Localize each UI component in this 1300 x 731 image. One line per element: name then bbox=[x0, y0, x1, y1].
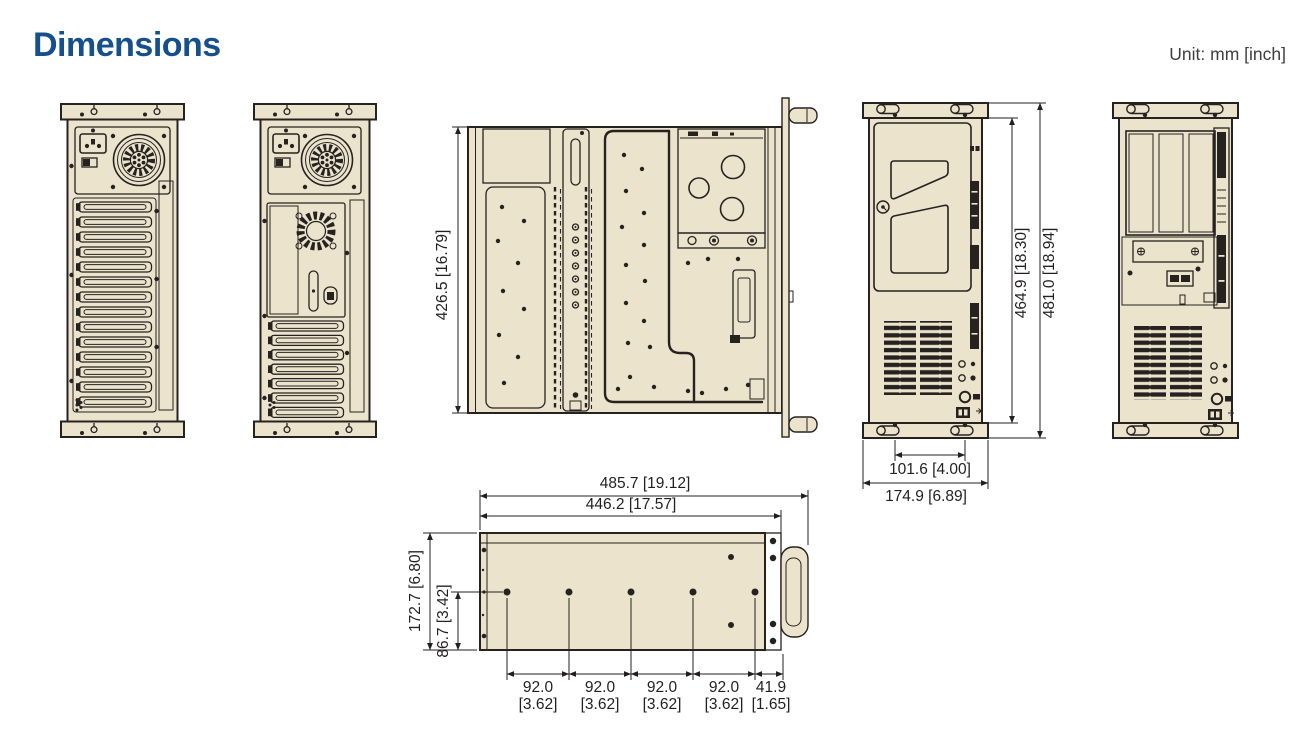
chassis-bottom-outline bbox=[480, 533, 765, 650]
spacing-mm-1: 92.0 bbox=[585, 679, 616, 696]
spacing-mm-3: 92.0 bbox=[709, 679, 740, 696]
dim-label-front-total-height: 481.0 [18.94] bbox=[1041, 228, 1058, 319]
spacing-mm-4: 41.9 bbox=[756, 679, 786, 696]
psu-fan-icon bbox=[114, 135, 165, 186]
handle-mount-icon bbox=[877, 426, 899, 435]
dim-label-bottom-total-length: 485.7 [19.12] bbox=[600, 475, 691, 492]
rack-flange bbox=[782, 98, 789, 437]
handle-mount-icon bbox=[1127, 105, 1149, 114]
mount-bracket-right bbox=[765, 533, 781, 650]
dim-front-inner-height: 464.9 [18.30] bbox=[982, 118, 1030, 423]
dim-label-front-width: 174.9 [6.89] bbox=[885, 488, 967, 505]
unit-label: Unit: mm [inch] bbox=[1169, 44, 1286, 65]
front-vent-right bbox=[1170, 326, 1202, 400]
top-flange bbox=[61, 104, 184, 120]
front-view-open bbox=[1110, 95, 1245, 440]
dim-label-front-inner-height: 464.9 [18.30] bbox=[1013, 228, 1030, 319]
rack-handle-bottom bbox=[789, 417, 817, 432]
spacing-inch-0: [3.62] bbox=[519, 696, 558, 713]
bottom-view: 485.7 [19.12] 446.2 [17.57] 172.7 [6.80]… bbox=[395, 470, 825, 715]
spacing-mm-0: 92.0 bbox=[523, 679, 554, 696]
dim-label-top-depth: 426.5 [16.79] bbox=[434, 230, 451, 321]
dimensions-page: Dimensions Unit: mm [inch] bbox=[0, 0, 1300, 731]
handle-mount-icon bbox=[951, 105, 973, 114]
spacing-mm-2: 92.0 bbox=[647, 679, 678, 696]
dim-label-bottom-total-width: 172.7 [6.80] bbox=[407, 550, 424, 632]
top-view: 426.5 [16.79] bbox=[430, 95, 825, 440]
dim-handle-hole-spacing: 101.6 [4.00] bbox=[889, 440, 971, 478]
front-view-door: 464.9 [18.30] 481.0 [18.94] 101.6 [4.00]… bbox=[860, 95, 1070, 505]
dim-top-depth: 426.5 [16.79] bbox=[434, 127, 468, 413]
rack-handle-top bbox=[789, 108, 817, 123]
spacing-inch-3: [3.62] bbox=[705, 696, 744, 713]
handle-mount-icon bbox=[1127, 426, 1149, 435]
dim-label-bottom-hole-offset: 86.7 [3.42] bbox=[435, 584, 452, 657]
front-vent-left bbox=[1134, 326, 1166, 400]
page-title: Dimensions bbox=[33, 26, 221, 65]
rear-view-full-slots bbox=[60, 103, 185, 438]
handle-mount-icon bbox=[1201, 105, 1223, 114]
handle-mount-icon bbox=[877, 105, 899, 114]
handle-mount-icon bbox=[951, 426, 973, 435]
dim-label-handle-hole-spacing: 101.6 [4.00] bbox=[889, 461, 971, 478]
spacing-inch-2: [3.62] bbox=[643, 696, 682, 713]
spacing-inch-1: [3.62] bbox=[581, 696, 620, 713]
front-vent-right bbox=[920, 321, 952, 395]
bottom-flange bbox=[61, 422, 184, 438]
front-vent-left bbox=[884, 321, 916, 395]
handle-mount-icon bbox=[1201, 426, 1223, 435]
rear-view-io-slots bbox=[253, 103, 377, 438]
top-flange bbox=[254, 104, 376, 120]
dim-label-bottom-body-length: 446.2 [17.57] bbox=[586, 496, 677, 513]
psu-fan-icon bbox=[302, 135, 353, 186]
spacing-inch-4: [1.65] bbox=[752, 696, 791, 713]
bottom-flange bbox=[254, 422, 376, 438]
side-handle bbox=[781, 547, 808, 637]
